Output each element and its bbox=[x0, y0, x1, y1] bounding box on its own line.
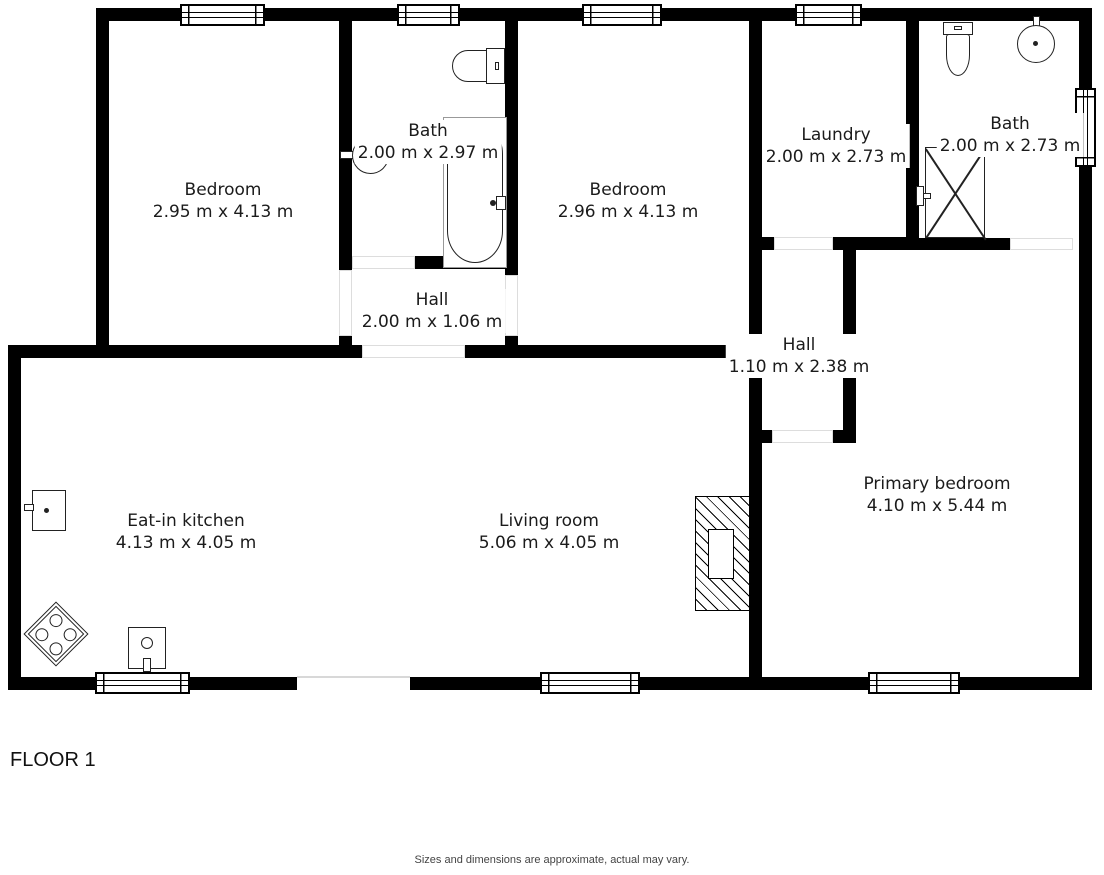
door-hall1-bedroom1 bbox=[339, 270, 352, 336]
wall-bedroom1-bath1 bbox=[339, 21, 352, 270]
room-dims: 2.00 m x 1.06 m bbox=[362, 311, 503, 333]
kitchen-sink-faucet bbox=[143, 658, 151, 672]
room-dims: 5.06 m x 4.05 m bbox=[479, 532, 620, 554]
room-name: Laundry bbox=[766, 124, 907, 146]
outer-wall-left-upper bbox=[96, 8, 109, 358]
room-dims: 2.00 m x 2.73 m bbox=[766, 146, 907, 168]
room-dims: 2.95 m x 4.13 m bbox=[153, 201, 294, 223]
window-primary-bottom bbox=[868, 672, 960, 694]
wall-hall2-door-stub-left bbox=[762, 430, 772, 443]
room-dims: 4.10 m x 5.44 m bbox=[863, 495, 1010, 517]
door-laundry-hall2 bbox=[774, 237, 833, 250]
window-living-bottom bbox=[540, 672, 640, 694]
door-hall1-living bbox=[362, 345, 465, 358]
toilet-bowl bbox=[452, 50, 490, 82]
room-label-primary-bedroom: Primary bedroom 4.10 m x 5.44 m bbox=[860, 473, 1013, 517]
shower-icon bbox=[925, 147, 985, 238]
room-label-bath-left: Bath 2.00 m x 2.97 m bbox=[355, 120, 502, 164]
entry-opening bbox=[297, 677, 410, 690]
window-bath1-top bbox=[397, 4, 460, 26]
bathtub-tap bbox=[496, 196, 506, 210]
room-label-hall-left: Hall 2.00 m x 1.06 m bbox=[359, 289, 506, 333]
room-name: Living room bbox=[479, 510, 620, 532]
door-bath1 bbox=[352, 256, 415, 269]
entry-threshold-line bbox=[297, 676, 410, 678]
sink-drain bbox=[1033, 41, 1038, 46]
room-label-kitchen: Eat-in kitchen 4.13 m x 4.05 m bbox=[113, 510, 260, 554]
refrigerator-knob bbox=[44, 508, 49, 513]
room-label-bedroom-left: Bedroom 2.95 m x 4.13 m bbox=[150, 179, 297, 223]
door-hall2-primary bbox=[772, 430, 833, 443]
room-name: Hall bbox=[362, 289, 503, 311]
room-name: Eat-in kitchen bbox=[116, 510, 257, 532]
wall-bedroom2-bottom bbox=[465, 345, 762, 358]
bathtub-knob bbox=[490, 200, 496, 206]
refrigerator-handle bbox=[24, 504, 34, 511]
outer-wall-left-lower bbox=[8, 345, 21, 690]
wall-bath2-bottom bbox=[919, 238, 1010, 250]
floor-title: FLOOR 1 bbox=[10, 749, 96, 772]
toilet-flush bbox=[495, 62, 499, 70]
wall-step-bedroom-bottom bbox=[8, 345, 352, 358]
kitchen-sink-drain bbox=[141, 637, 153, 649]
toilet-icon bbox=[452, 48, 505, 84]
wall-bedroom1-hall1-stub bbox=[339, 336, 352, 358]
wall-hall1-bottom-stub bbox=[352, 345, 362, 358]
room-name: Hall bbox=[729, 334, 870, 356]
window-kitchen-bottom bbox=[95, 672, 190, 694]
window-laundry-top bbox=[795, 4, 862, 26]
room-label-living-room: Living room 5.06 m x 4.05 m bbox=[476, 510, 623, 554]
room-name: Bedroom bbox=[153, 179, 294, 201]
room-label-bath-right: Bath 2.00 m x 2.73 m bbox=[937, 113, 1084, 157]
refrigerator-icon bbox=[32, 490, 66, 531]
wall-hall2-door-seg-right bbox=[833, 430, 856, 443]
shower-valve-handle bbox=[923, 193, 931, 199]
room-dims: 4.13 m x 4.05 m bbox=[116, 532, 257, 554]
room-label-bedroom-middle: Bedroom 2.96 m x 4.13 m bbox=[555, 179, 702, 223]
toilet-icon bbox=[943, 22, 973, 77]
floor-plan: Bedroom 2.95 m x 4.13 m Bath 2.00 m x 2.… bbox=[0, 0, 1104, 875]
room-dims: 2.96 m x 4.13 m bbox=[558, 201, 699, 223]
room-dims: 2.00 m x 2.73 m bbox=[940, 135, 1081, 157]
room-dims: 2.00 m x 2.97 m bbox=[358, 142, 499, 164]
fireplace-firebox bbox=[708, 529, 734, 579]
room-name: Bath bbox=[358, 120, 499, 142]
room-name: Bath bbox=[940, 113, 1081, 135]
stove-icon bbox=[23, 601, 88, 666]
window-bedroom1-top bbox=[180, 4, 265, 26]
door-hall1-bedroom2 bbox=[505, 275, 518, 336]
disclaimer-text: Sizes and dimensions are approximate, ac… bbox=[0, 854, 1104, 866]
room-dims: 1.10 m x 2.38 m bbox=[729, 356, 870, 378]
shower-cross-line bbox=[925, 148, 986, 240]
window-bedroom2-top bbox=[582, 4, 662, 26]
room-label-laundry: Laundry 2.00 m x 2.73 m bbox=[763, 124, 910, 168]
door-bath2 bbox=[1010, 238, 1073, 250]
toilet-flush bbox=[954, 26, 962, 30]
room-name: Bedroom bbox=[558, 179, 699, 201]
toilet-bowl bbox=[946, 34, 970, 76]
room-label-hall-right: Hall 1.10 m x 2.38 m bbox=[726, 334, 873, 378]
room-name: Primary bedroom bbox=[863, 473, 1010, 495]
wall-laundry-door-stub bbox=[762, 237, 774, 250]
fireplace-icon bbox=[695, 496, 750, 611]
